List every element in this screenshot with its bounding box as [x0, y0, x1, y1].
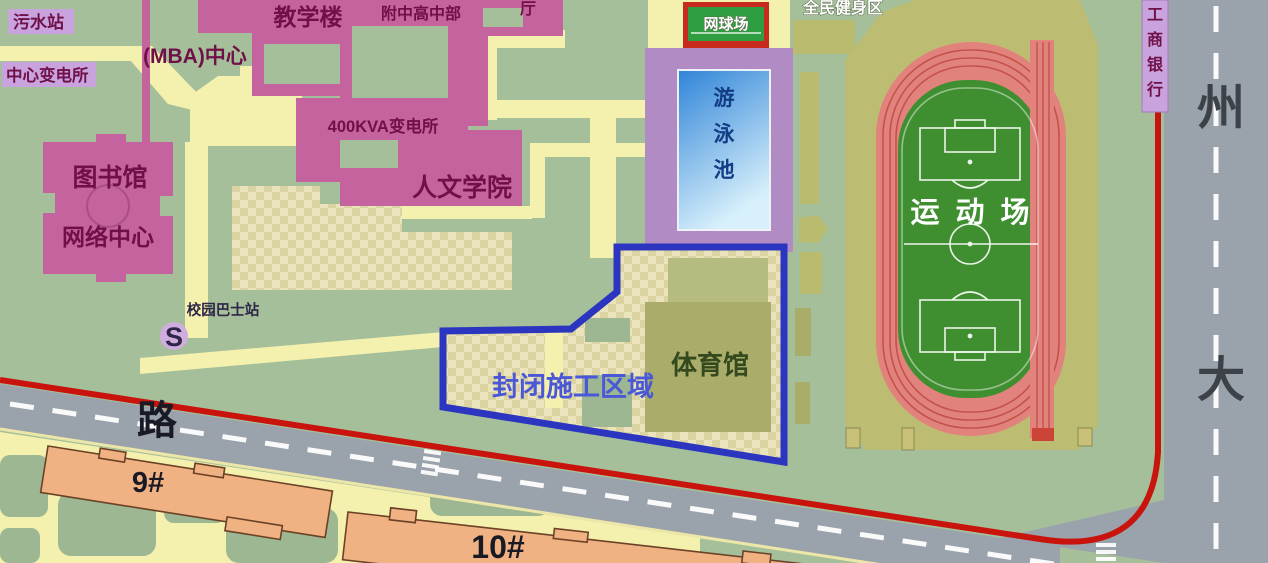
humanities-college-label: 人文学院 [412, 173, 512, 202]
campus-map: 污水站 中心变电所 (MBA)中心 教学楼 附中高中部 厅 400KVA变电所 … [0, 0, 1268, 563]
right-road-name-bottom: 大 [1197, 354, 1245, 407]
high-school-label: 附中高中部 [381, 4, 461, 23]
mba-center-label: (MBA)中心 [143, 45, 247, 68]
crosswalk-2 [1096, 543, 1116, 561]
fitness-zone-label: 全民健身区 [802, 0, 883, 17]
swimming-pool-label: 游泳池 [714, 86, 736, 182]
track-straightaway [1030, 40, 1054, 438]
campus-map-canvas: 污水站 中心变电所 (MBA)中心 教学楼 附中高中部 厅 400KVA变电所 … [0, 0, 1268, 563]
dorm-10-label: 10# [471, 529, 525, 563]
tennis-court-label: 网球场 [703, 15, 748, 33]
sewage-station-label: 污水站 [13, 12, 64, 32]
fitness-pad [793, 20, 855, 54]
kva-substation-label: 400KVA变电所 [328, 116, 439, 136]
hall-label: 厅 [520, 0, 536, 18]
gymnasium-annex [668, 258, 768, 302]
sports-field-label: 运动场 [910, 196, 1045, 229]
bottom-road-name: 路 [137, 399, 178, 443]
dorm-9-label: 9# [132, 467, 164, 499]
teaching-building-label: 教学楼 [274, 4, 343, 30]
bus-stop-marker: S [165, 322, 183, 352]
library-label: 图书馆 [72, 163, 147, 192]
right-road-name-top: 州 [1197, 82, 1245, 135]
network-center-label: 网络中心 [62, 224, 154, 250]
construction-zone-label: 封闭施工区域 [492, 372, 654, 402]
central-substation-label: 中心变电所 [6, 65, 89, 85]
campus-road-pink-strip [142, 0, 150, 164]
campus-bus-stop-label: 校园巴士站 [187, 301, 260, 319]
gymnasium-label: 体育馆 [671, 350, 749, 380]
library-building [43, 134, 173, 282]
